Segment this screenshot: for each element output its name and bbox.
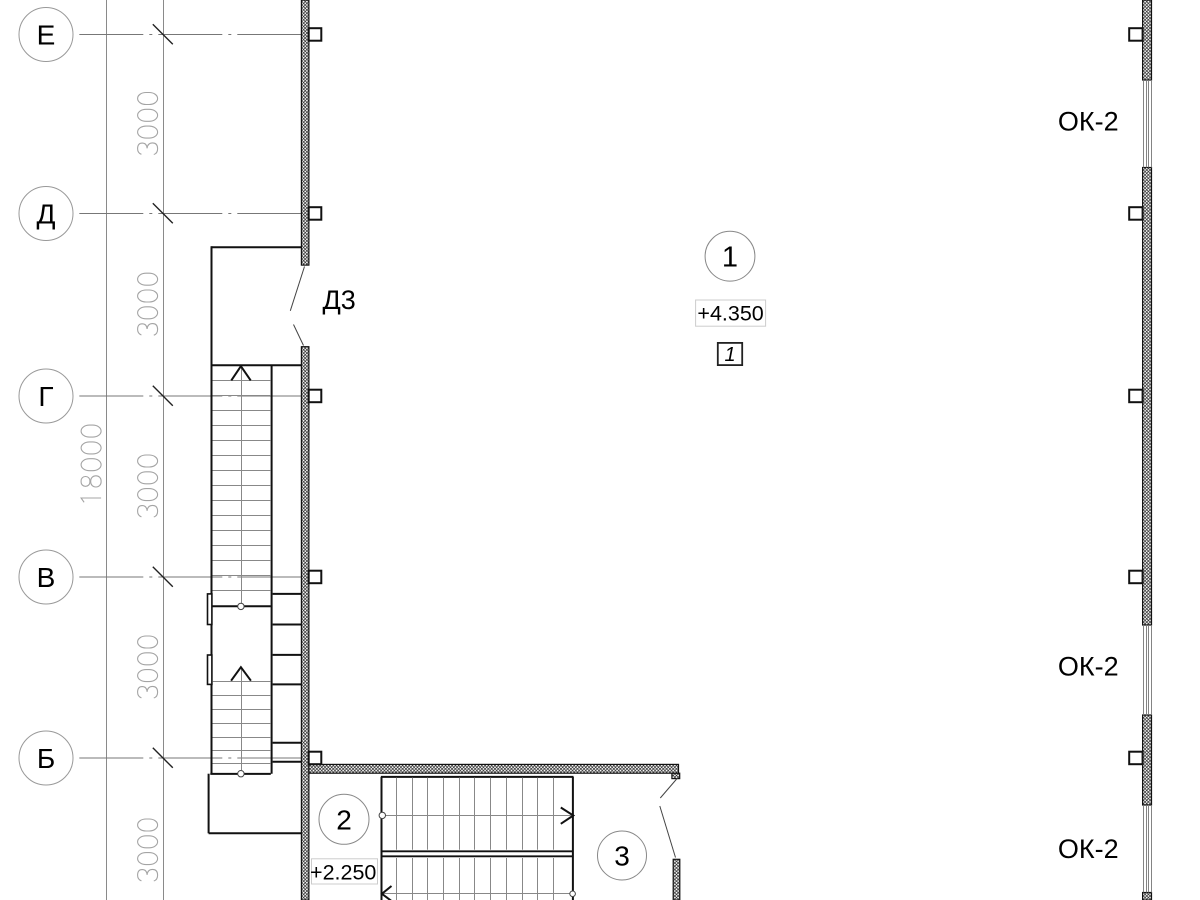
svg-text:В: В	[37, 562, 56, 593]
svg-text:ОК-2: ОК-2	[1058, 107, 1119, 137]
svg-text:1: 1	[724, 344, 735, 366]
svg-text:+4.350: +4.350	[697, 302, 763, 326]
svg-text:Б: Б	[37, 743, 55, 774]
svg-text:2: 2	[336, 804, 352, 835]
svg-text:1: 1	[722, 242, 738, 274]
svg-text:ОК-2: ОК-2	[1058, 834, 1119, 864]
svg-text:Д: Д	[37, 199, 56, 230]
svg-text:Д3: Д3	[323, 285, 356, 315]
svg-text:Е: Е	[37, 20, 56, 51]
svg-text:ОК-2: ОК-2	[1058, 652, 1119, 682]
svg-text:Г: Г	[38, 381, 53, 412]
svg-text:+2.250: +2.250	[310, 861, 376, 885]
svg-text:3: 3	[614, 841, 630, 872]
